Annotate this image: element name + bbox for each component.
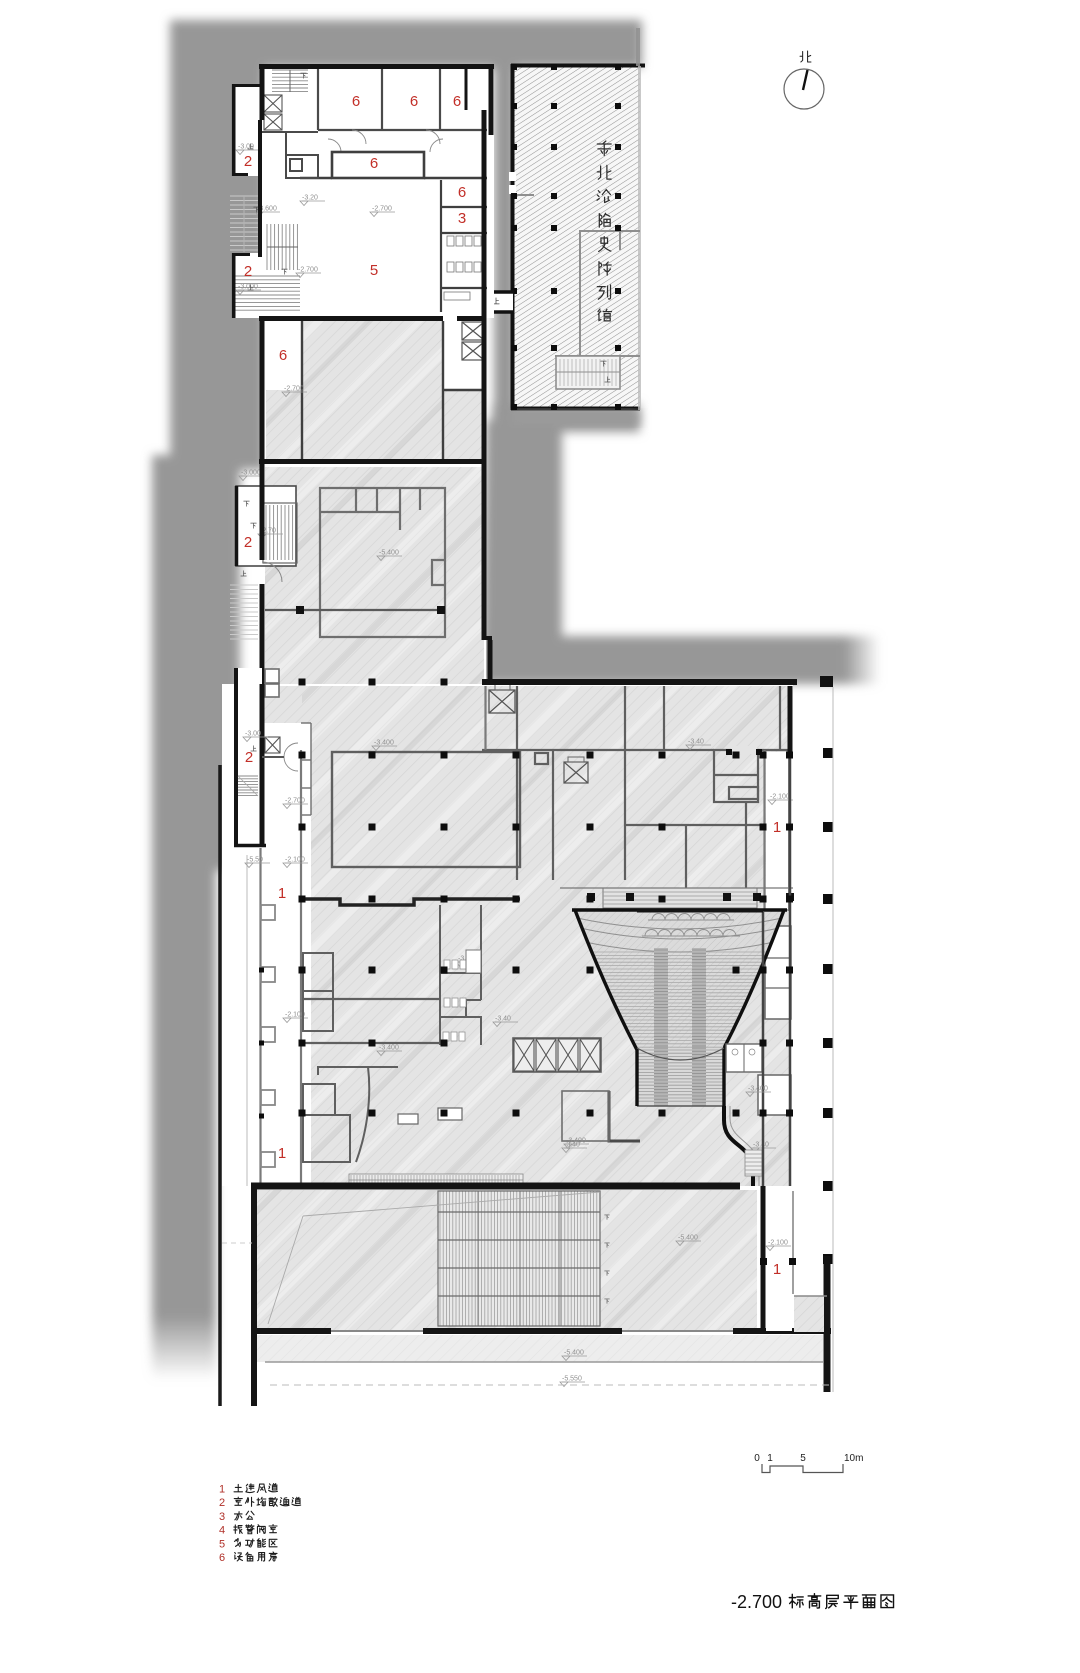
svg-text:-2.100: -2.100 [768, 1240, 788, 1247]
svg-text:-3.40: -3.40 [753, 1142, 769, 1149]
svg-text:6: 6 [370, 155, 378, 172]
svg-text:5: 5 [219, 1538, 225, 1550]
svg-text:-5.400: -5.400 [564, 1350, 584, 1357]
svg-text:-2.700: -2.700 [731, 1592, 782, 1612]
svg-text:-2.100: -2.100 [285, 1012, 305, 1019]
svg-text:6: 6 [219, 1552, 225, 1564]
svg-text:-2.700: -2.700 [298, 267, 318, 274]
svg-text:-5.400: -5.400 [379, 550, 399, 557]
svg-text:-5.400: -5.400 [678, 1235, 698, 1242]
svg-text:4: 4 [219, 1525, 225, 1537]
svg-text:1: 1 [767, 1453, 773, 1464]
svg-text:-3.000: -3.000 [241, 470, 261, 477]
svg-text:1: 1 [773, 819, 781, 836]
svg-text:2: 2 [244, 534, 252, 551]
svg-text:-2.700: -2.700 [285, 798, 305, 805]
svg-text:-3.40: -3.40 [688, 739, 704, 746]
svg-text:6: 6 [453, 93, 461, 110]
svg-text:-5.550: -5.550 [562, 1376, 582, 1383]
svg-text:-2.100: -2.100 [285, 857, 305, 864]
svg-text:-2.700: -2.700 [284, 386, 304, 393]
svg-text:2: 2 [219, 1497, 225, 1509]
svg-text:-3.00: -3.00 [245, 731, 261, 738]
svg-text:2: 2 [245, 749, 253, 766]
svg-text:3: 3 [458, 210, 466, 227]
svg-text:-3.000: -3.000 [238, 284, 258, 291]
svg-text:1: 1 [278, 885, 286, 902]
svg-text:10m: 10m [844, 1453, 863, 1464]
svg-text:-3.20: -3.20 [302, 195, 318, 202]
svg-text:1: 1 [219, 1484, 225, 1496]
svg-text:5: 5 [800, 1453, 806, 1464]
svg-text:6: 6 [410, 93, 418, 110]
svg-text:1: 1 [773, 1261, 781, 1278]
svg-text:-5.50: -5.50 [247, 857, 263, 864]
svg-text:6: 6 [352, 93, 360, 110]
svg-text:-3.400: -3.400 [374, 740, 394, 747]
svg-text:-3.400: -3.400 [379, 1045, 399, 1052]
svg-text:2: 2 [244, 263, 252, 280]
svg-text:3: 3 [219, 1511, 225, 1523]
svg-text:6: 6 [279, 347, 287, 364]
svg-text:1: 1 [278, 1145, 286, 1162]
svg-text:6: 6 [458, 184, 466, 201]
svg-text:-2.700: -2.700 [372, 206, 392, 213]
svg-text:2: 2 [244, 153, 252, 170]
svg-text:-3.400: -3.400 [748, 1086, 768, 1093]
svg-text:-2.100: -2.100 [770, 794, 790, 801]
svg-text:0: 0 [754, 1453, 760, 1464]
svg-text:5: 5 [370, 262, 378, 279]
svg-text:-3.400: -3.400 [566, 1138, 586, 1145]
svg-text:-3.00: -3.00 [238, 144, 254, 151]
svg-text:-3.40: -3.40 [495, 1016, 511, 1023]
